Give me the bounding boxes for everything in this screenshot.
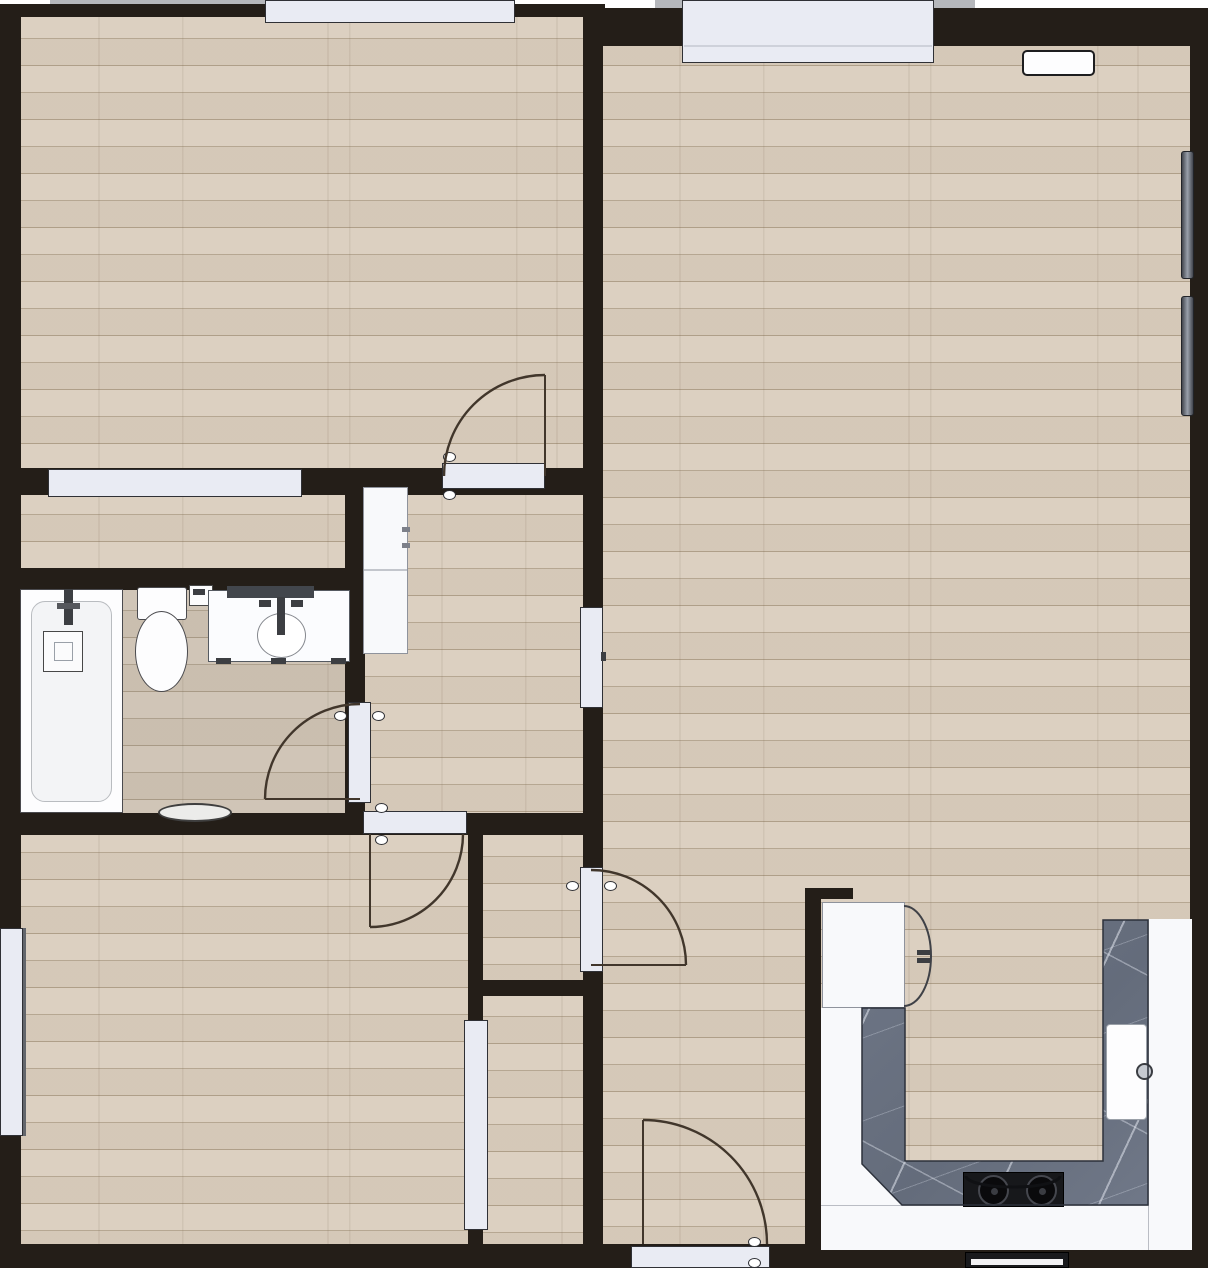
knob-bedroom1-door-b bbox=[443, 490, 456, 500]
toilet-paper-roll bbox=[193, 589, 205, 595]
kitchen-sink-faucet bbox=[1136, 1063, 1153, 1080]
fridge-handle-a bbox=[917, 950, 931, 955]
door-living-closet[interactable] bbox=[580, 867, 603, 972]
door-hallway-living-handle bbox=[601, 652, 606, 661]
radiator-living-lower[interactable] bbox=[1181, 296, 1194, 416]
window-bedroom2-left[interactable] bbox=[0, 928, 23, 1136]
knob-entry-door-b bbox=[748, 1258, 761, 1268]
vanity-handle-right bbox=[291, 600, 303, 607]
shower-control-inner bbox=[54, 642, 73, 661]
knob-closet-door-a bbox=[566, 881, 579, 891]
wall-kitchen-top-stub bbox=[805, 888, 853, 899]
floor-bedroom2-closet bbox=[478, 990, 590, 1250]
door-bedroom-2[interactable] bbox=[363, 811, 467, 834]
radiator-living-upper[interactable] bbox=[1181, 151, 1194, 279]
knob-closet-door-b bbox=[604, 881, 617, 891]
opening-bedroom1-closet[interactable] bbox=[48, 469, 302, 497]
oven-front-handle bbox=[971, 1259, 1063, 1265]
vanity-backsplash bbox=[227, 586, 314, 598]
wall-bathroom-bottom bbox=[0, 813, 603, 835]
knob-bedroom2-door-b bbox=[375, 835, 388, 845]
opening-bedroom2-closet[interactable] bbox=[464, 1020, 488, 1230]
stove-burner-right-dot bbox=[1039, 1188, 1046, 1195]
vanity-foot-b bbox=[271, 658, 286, 664]
window-bedroom2-frame-line bbox=[23, 928, 26, 1136]
floor-plan bbox=[0, 0, 1208, 1268]
window-living-room-sill-line bbox=[684, 45, 932, 47]
hall-wardrobe-divider bbox=[364, 569, 407, 571]
floor-bedroom-1 bbox=[15, 12, 590, 474]
floor-living-room-closet bbox=[478, 830, 590, 986]
floor-bedroom-2 bbox=[15, 826, 475, 1250]
door-bathroom[interactable] bbox=[348, 702, 371, 803]
vanity-foot-c bbox=[331, 658, 346, 664]
vanity-handle-left bbox=[259, 600, 271, 607]
kitchen-cabinet-bottom-band[interactable] bbox=[821, 1205, 1192, 1250]
door-hallway-living[interactable] bbox=[580, 607, 603, 708]
kitchen-cabinet-right-band[interactable] bbox=[1148, 919, 1192, 1250]
hall-wardrobe-handle-a bbox=[402, 527, 410, 532]
vanity-foot-a bbox=[216, 658, 231, 664]
toilet-bowl[interactable] bbox=[135, 611, 188, 692]
window-living-room-top[interactable] bbox=[682, 0, 934, 63]
door-bedroom-1[interactable] bbox=[442, 463, 545, 489]
bath-mat[interactable] bbox=[158, 803, 232, 822]
knob-bathroom-door-b bbox=[372, 711, 385, 721]
floor-bedroom1-closet-strip bbox=[15, 488, 360, 576]
knob-bathroom-door-a bbox=[334, 711, 347, 721]
window-bedroom1-top[interactable] bbox=[265, 0, 515, 23]
knob-bedroom2-door-a bbox=[375, 803, 388, 813]
knob-bedroom1-door-a bbox=[443, 452, 456, 462]
vent-living-top[interactable] bbox=[1022, 50, 1095, 76]
vanity-faucet bbox=[277, 597, 285, 635]
fridge-handle-b bbox=[917, 958, 931, 963]
knob-entry-door-a bbox=[748, 1237, 761, 1247]
wall-kitchen-left bbox=[805, 888, 821, 1244]
bathtub-faucet-bar bbox=[57, 603, 80, 609]
fridge[interactable] bbox=[822, 902, 905, 1008]
wall-closet-bottom bbox=[483, 980, 603, 996]
stove-burner-left-dot bbox=[991, 1188, 998, 1195]
hall-wardrobe-handle-b bbox=[402, 543, 410, 548]
